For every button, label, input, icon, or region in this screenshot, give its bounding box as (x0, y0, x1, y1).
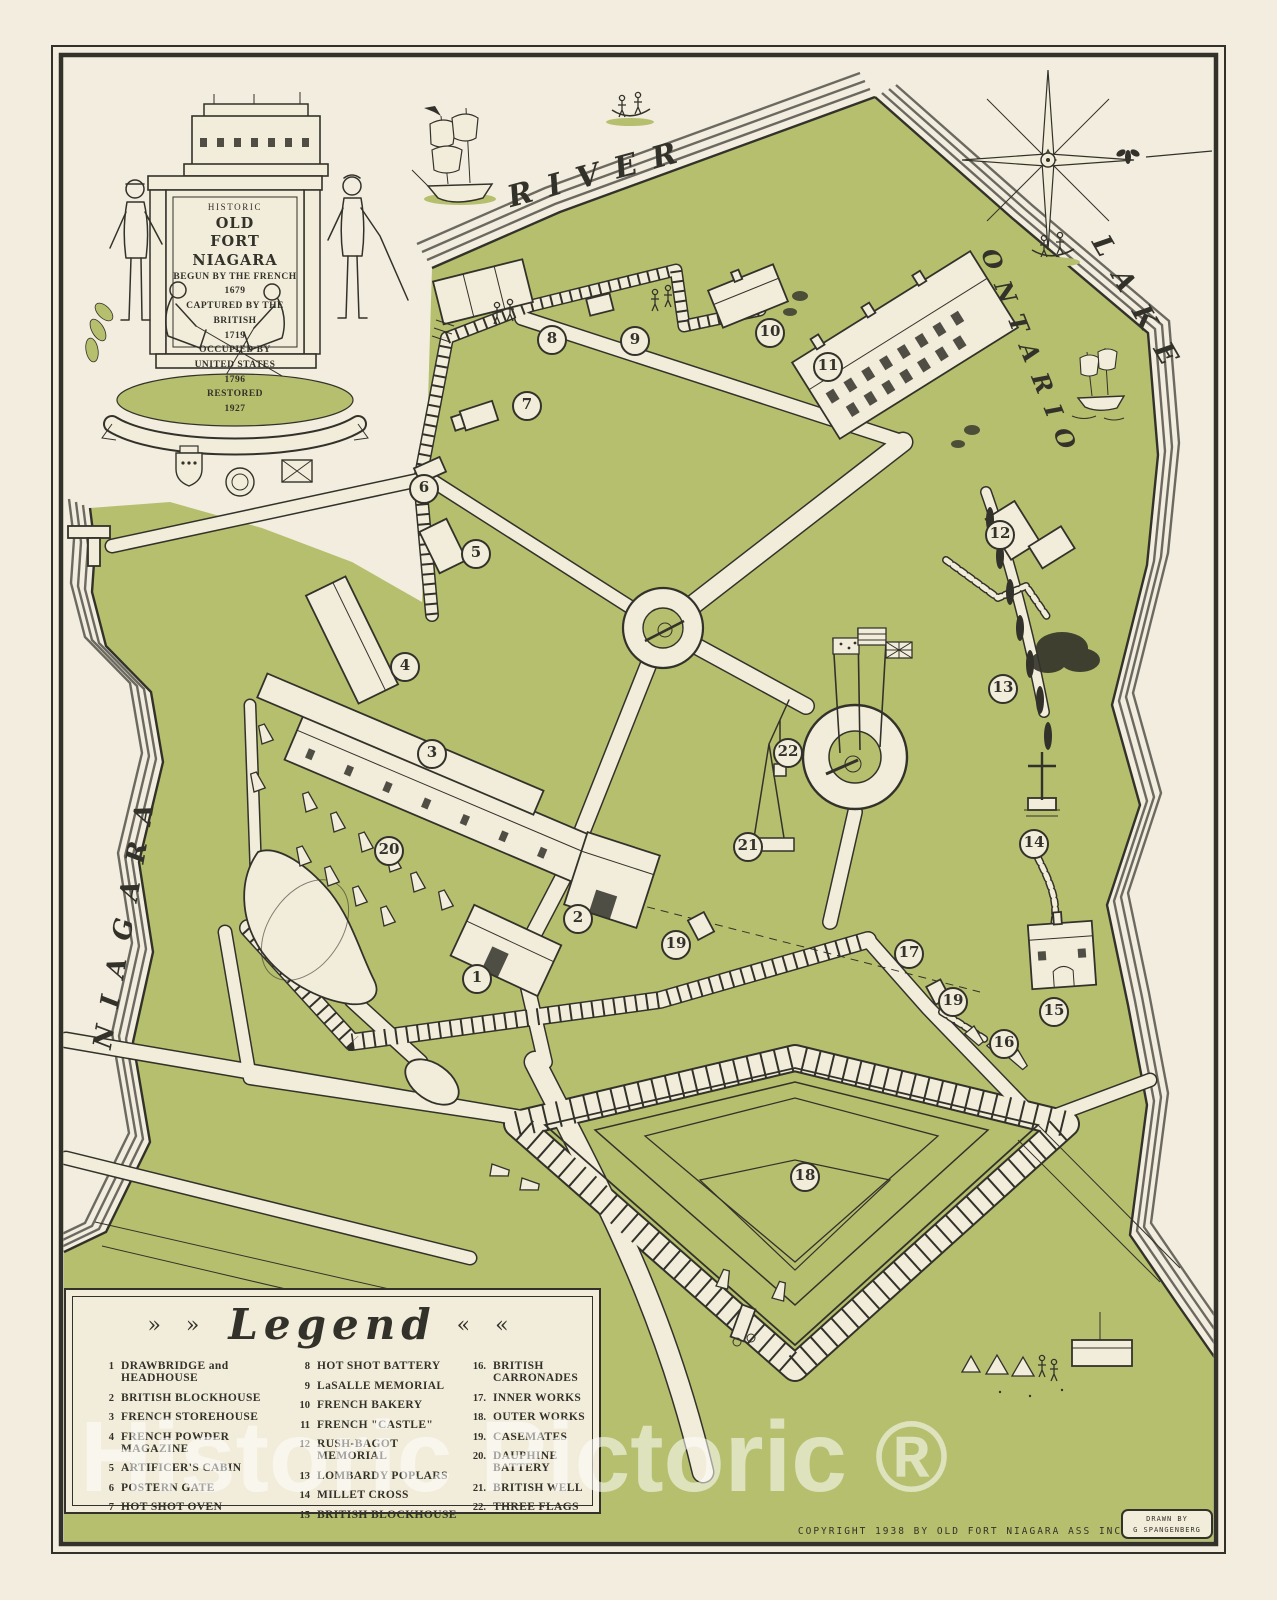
cartouche-occupied2: UNITED STATES (169, 358, 301, 373)
cartouche-name: FORT NIAGARA (169, 233, 301, 269)
legend-item-8: 8HOT SHOT BATTERY (292, 1360, 468, 1372)
cartouche-historic: HISTORIC (169, 200, 301, 215)
legend-item-9: 9LaSALLE MEMORIAL (292, 1380, 468, 1392)
legend-item-6: 6POSTERN GATE (96, 1482, 292, 1494)
legend-item-7: 7HOT SHOT OVEN (96, 1501, 292, 1513)
legend-item-5: 5ARTIFICER'S CABIN (96, 1462, 292, 1474)
legend-item-1: 1DRAWBRIDGE and HEADHOUSE (96, 1360, 292, 1384)
legend-item-2: 2BRITISH BLOCKHOUSE (96, 1392, 292, 1404)
legend-guillemets-right: « « (457, 1313, 518, 1338)
cartouche-captured: CAPTURED BY THE BRITISH (169, 299, 301, 328)
cartouche-occupied1: OCCUPIED BY (169, 343, 301, 358)
legend-item-22: 22.THREE FLAGS (468, 1501, 608, 1513)
british-flag (886, 642, 912, 658)
map-page: HISTORIC OLD FORT NIAGARA BEGUN BY THE F… (0, 0, 1277, 1600)
cartouche-restored-year: 1927 (169, 402, 301, 417)
legend-item-21: 21.BRITISH WELL (468, 1482, 608, 1494)
legend-column-3: 16.BRITISH CARRONADES17.INNER WORKS18.OU… (468, 1360, 608, 1528)
copyright-text: COPYRIGHT 1938 BY OLD FORT NIAGARA ASS I… (792, 1526, 1128, 1537)
central-circle-cannon (623, 588, 703, 668)
legend-item-19: 19.CASEMATES (468, 1431, 608, 1443)
drawn-by-box: DRAWN BY G SPANGENBERG (1121, 1509, 1213, 1539)
legend-item-13: 13LOMBARDY POPLARS (292, 1470, 468, 1482)
french-flag (833, 638, 859, 654)
legend-item-17: 17.INNER WORKS (468, 1392, 608, 1404)
cartouche-began-year: 1679 (169, 284, 301, 299)
us-flag (858, 628, 886, 645)
cartouche-began: BEGUN BY THE FRENCH (169, 270, 301, 285)
legend-item-11: 11FRENCH "CASTLE" (292, 1419, 468, 1431)
drawn-by-line1: DRAWN BY (1123, 1514, 1211, 1525)
legend-item-20: 20.DAUPHINE BATTERY (468, 1450, 608, 1474)
cartouche-captured-year: 1719 (169, 329, 301, 344)
legend-guillemets-left: » » (147, 1313, 208, 1338)
cartouche-old: OLD (169, 215, 301, 233)
legend-columns: 1DRAWBRIDGE and HEADHOUSE2BRITISH BLOCKH… (66, 1346, 599, 1528)
legend-box: » » Legend « « 1DRAWBRIDGE and HEADHOUSE… (64, 1288, 601, 1514)
legend-item-18: 18.OUTER WORKS (468, 1411, 608, 1423)
legend-item-14: 14MILLET CROSS (292, 1489, 468, 1501)
french-crest (176, 446, 202, 486)
legend-item-10: 10FRENCH BAKERY (292, 1399, 468, 1411)
royal-crest (282, 460, 312, 482)
legend-column-1: 1DRAWBRIDGE and HEADHOUSE2BRITISH BLOCKH… (96, 1360, 292, 1528)
cartouche-restored: RESTORED (169, 387, 301, 402)
legend-title-text: Legend (228, 1304, 436, 1346)
cartouche-text: HISTORIC OLD FORT NIAGARA BEGUN BY THE F… (169, 200, 301, 417)
cartouche-occupied-year: 1796 (169, 373, 301, 388)
legend-item-16: 16.BRITISH CARRONADES (468, 1360, 608, 1384)
legend-item-15: 15BRITISH BLOCKHOUSE (292, 1509, 468, 1521)
legend-item-3: 3FRENCH STOREHOUSE (96, 1411, 292, 1423)
legend-title: » » Legend « « (66, 1304, 599, 1346)
legend-item-4: 4FRENCH POWDER MAGAZINE (96, 1431, 292, 1455)
legend-column-2: 8HOT SHOT BATTERY9LaSALLE MEMORIAL10FREN… (292, 1360, 468, 1528)
eagle-crest (226, 468, 254, 496)
legend-item-12: 12RUSH-BAGOT MEMORIAL (292, 1438, 468, 1462)
drawn-by-line2: G SPANGENBERG (1123, 1525, 1211, 1536)
